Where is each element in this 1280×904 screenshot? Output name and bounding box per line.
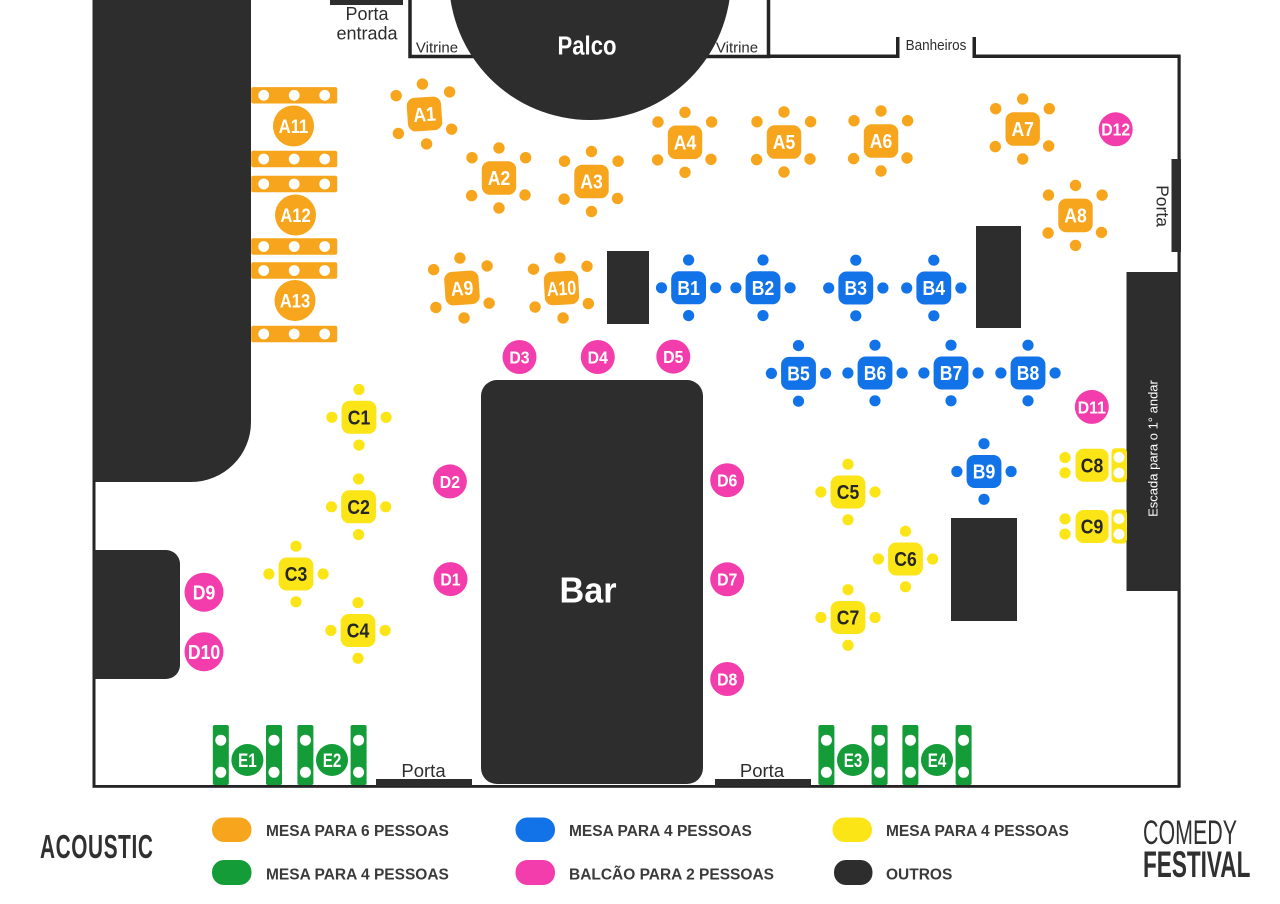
svg-text:E2: E2 <box>323 749 342 771</box>
svg-text:ACOUSTIC: ACOUSTIC <box>40 828 154 865</box>
svg-text:D5: D5 <box>663 347 683 367</box>
svg-text:D10: D10 <box>188 641 220 663</box>
svg-text:B3: B3 <box>845 277 867 299</box>
svg-text:C7: C7 <box>837 607 859 629</box>
svg-text:Vitrine: Vitrine <box>416 40 458 57</box>
svg-text:A12: A12 <box>280 205 310 227</box>
svg-text:MESA PARA 4 PESSOAS: MESA PARA 4 PESSOAS <box>266 867 449 884</box>
svg-text:A7: A7 <box>1011 118 1033 140</box>
svg-text:A10: A10 <box>546 277 576 301</box>
svg-text:B6: B6 <box>864 362 886 384</box>
svg-text:entrada: entrada <box>336 24 398 44</box>
svg-text:Palco: Palco <box>558 32 617 61</box>
svg-text:D8: D8 <box>717 669 737 689</box>
svg-text:Porta: Porta <box>1153 185 1173 227</box>
svg-text:Escada para o 1° andar: Escada para o 1° andar <box>1146 379 1161 516</box>
svg-text:A8: A8 <box>1064 205 1086 227</box>
svg-text:B5: B5 <box>787 363 809 385</box>
svg-text:E4: E4 <box>928 749 947 771</box>
svg-text:D1: D1 <box>440 570 460 590</box>
svg-text:A3: A3 <box>580 171 602 193</box>
svg-text:MESA PARA 6 PESSOAS: MESA PARA 6 PESSOAS <box>266 823 449 840</box>
svg-text:C9: C9 <box>1081 516 1103 538</box>
svg-text:E1: E1 <box>238 749 257 771</box>
svg-text:OUTROS: OUTROS <box>886 867 952 884</box>
svg-text:C1: C1 <box>348 406 370 428</box>
svg-text:C4: C4 <box>347 620 370 642</box>
svg-text:B9: B9 <box>973 461 995 483</box>
svg-text:Porta: Porta <box>401 760 446 781</box>
svg-text:B7: B7 <box>940 362 962 384</box>
svg-text:B4: B4 <box>923 277 946 299</box>
svg-text:A6: A6 <box>870 130 892 152</box>
svg-text:D12: D12 <box>1101 120 1130 140</box>
svg-text:FESTIVAL: FESTIVAL <box>1143 844 1250 885</box>
svg-text:E3: E3 <box>844 749 863 771</box>
svg-text:D9: D9 <box>193 581 215 603</box>
svg-text:C8: C8 <box>1081 454 1103 476</box>
svg-text:D3: D3 <box>509 347 529 367</box>
svg-text:A5: A5 <box>773 131 795 153</box>
svg-text:BALCÃO PARA 2 PESSOAS: BALCÃO PARA 2 PESSOAS <box>569 866 774 884</box>
svg-text:A11: A11 <box>279 116 308 138</box>
svg-text:D7: D7 <box>717 570 737 590</box>
svg-text:Porta: Porta <box>345 4 389 24</box>
svg-text:D2: D2 <box>440 472 460 492</box>
svg-text:Banheiros: Banheiros <box>906 37 967 54</box>
svg-text:B1: B1 <box>677 277 699 299</box>
svg-text:C5: C5 <box>837 481 859 503</box>
svg-text:C3: C3 <box>285 563 307 585</box>
svg-text:A2: A2 <box>488 167 510 189</box>
svg-text:B8: B8 <box>1017 362 1039 384</box>
svg-text:A13: A13 <box>280 290 310 312</box>
svg-text:A1: A1 <box>413 102 437 126</box>
svg-text:C2: C2 <box>347 496 369 518</box>
svg-text:D4: D4 <box>588 347 609 367</box>
svg-text:A9: A9 <box>450 276 474 300</box>
svg-text:B2: B2 <box>752 277 774 299</box>
svg-text:Vitrine: Vitrine <box>716 40 758 57</box>
svg-text:Porta: Porta <box>740 760 785 781</box>
svg-text:MESA PARA 4 PESSOAS: MESA PARA 4 PESSOAS <box>569 823 752 840</box>
svg-text:C6: C6 <box>894 548 916 570</box>
svg-text:Bar: Bar <box>559 571 616 611</box>
svg-text:D6: D6 <box>717 471 737 491</box>
svg-text:MESA PARA 4 PESSOAS: MESA PARA 4 PESSOAS <box>886 823 1069 840</box>
svg-text:D11: D11 <box>1078 397 1106 417</box>
svg-text:A4: A4 <box>674 131 697 153</box>
